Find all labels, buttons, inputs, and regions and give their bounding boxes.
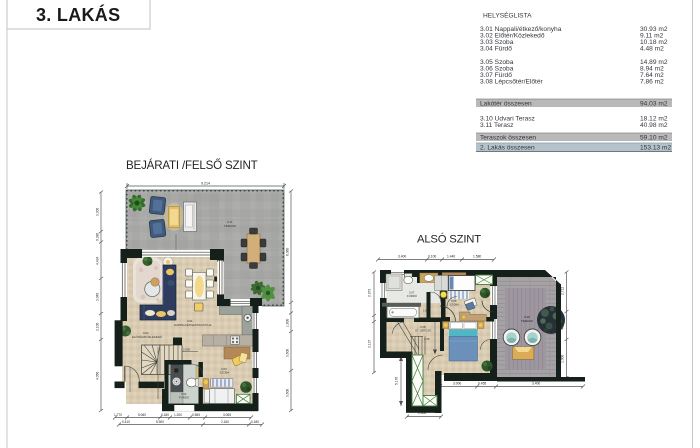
svg-text:3.04 Fürdő: 3.04 Fürdő bbox=[480, 46, 512, 53]
svg-text:3. LAKÁS: 3. LAKÁS bbox=[36, 4, 120, 25]
svg-text:SZOBA: SZOBA bbox=[220, 371, 230, 375]
svg-text:5.900: 5.900 bbox=[156, 420, 164, 424]
svg-text:4.48 m2: 4.48 m2 bbox=[640, 46, 664, 53]
svg-text:59.10 m2: 59.10 m2 bbox=[640, 135, 668, 142]
svg-text:0.180: 0.180 bbox=[161, 413, 169, 417]
svg-text:0.100: 0.100 bbox=[428, 255, 436, 259]
svg-text:2. Lakás összesen: 2. Lakás összesen bbox=[480, 145, 535, 152]
svg-text:TERASZ: TERASZ bbox=[224, 224, 236, 228]
svg-text:1.80: 1.80 bbox=[423, 309, 429, 313]
svg-text:2.712: 2.712 bbox=[561, 287, 565, 295]
svg-text:3.000: 3.000 bbox=[453, 382, 461, 386]
svg-text:HELYSÉGLISTA: HELYSÉGLISTA bbox=[483, 11, 532, 20]
svg-text:FÜRDŐ: FÜRDŐ bbox=[407, 293, 418, 298]
svg-text:6.060: 6.060 bbox=[286, 248, 290, 256]
svg-text:NAPPALI/ÉTKEZŐ/KONYHA: NAPPALI/ÉTKEZŐ/KONYHA bbox=[174, 322, 211, 327]
svg-text:3.600: 3.600 bbox=[286, 349, 290, 357]
svg-text:1.800: 1.800 bbox=[286, 319, 290, 327]
svg-text:FÜRDŐ: FÜRDŐ bbox=[179, 395, 190, 400]
svg-text:5.176: 5.176 bbox=[395, 377, 399, 385]
svg-text:Teraszok összesen: Teraszok összesen bbox=[480, 135, 536, 142]
svg-text:0.565: 0.565 bbox=[192, 413, 200, 417]
svg-text:ALSÓ SZINT: ALSÓ SZINT bbox=[417, 233, 481, 246]
svg-text:40.98 m2: 40.98 m2 bbox=[640, 122, 668, 129]
svg-text:0.380: 0.380 bbox=[96, 233, 100, 241]
svg-text:TERASZ: TERASZ bbox=[521, 319, 533, 323]
svg-text:SZOBA: SZOBA bbox=[450, 303, 460, 307]
svg-text:2.000: 2.000 bbox=[183, 348, 190, 352]
svg-text:3.137: 3.137 bbox=[368, 340, 372, 348]
svg-text:BEJÁRATI /FELSŐ SZINT: BEJÁRATI /FELSŐ SZINT bbox=[126, 158, 258, 172]
svg-text:2.160: 2.160 bbox=[221, 420, 229, 424]
svg-text:3.05: 3.05 bbox=[424, 337, 430, 341]
svg-text:3.400: 3.400 bbox=[532, 382, 540, 386]
svg-text:7.86 m2: 7.86 m2 bbox=[640, 79, 664, 86]
svg-text:153.13 m2: 153.13 m2 bbox=[640, 145, 671, 152]
svg-text:3.08 Lépcsőtér/Előtér: 3.08 Lépcsőtér/Előtér bbox=[480, 79, 543, 86]
svg-text:Lakótér összesen: Lakótér összesen bbox=[480, 101, 532, 108]
svg-text:3.300: 3.300 bbox=[96, 208, 100, 216]
svg-text:ELŐTÉR/KÖZLEKEDŐ: ELŐTÉR/KÖZLEKEDŐ bbox=[132, 334, 163, 339]
svg-text:9.214: 9.214 bbox=[201, 182, 210, 186]
svg-text:5.060: 5.060 bbox=[138, 413, 146, 417]
svg-text:1.200: 1.200 bbox=[174, 413, 182, 417]
svg-text:4.050: 4.050 bbox=[96, 372, 100, 380]
svg-text:2.100: 2.100 bbox=[96, 323, 100, 331]
svg-text:1.580: 1.580 bbox=[473, 255, 481, 259]
svg-text:0.180: 0.180 bbox=[251, 420, 259, 424]
svg-text:3.045: 3.045 bbox=[96, 293, 100, 301]
svg-text:0.455: 0.455 bbox=[478, 382, 486, 386]
svg-text:1.000: 1.000 bbox=[561, 355, 565, 363]
svg-text:ST. LÉPCSŐ: ST. LÉPCSŐ bbox=[415, 328, 432, 333]
svg-text:4.434: 4.434 bbox=[96, 257, 100, 265]
svg-text:0.410: 0.410 bbox=[122, 420, 130, 424]
svg-text:3.600: 3.600 bbox=[286, 389, 290, 397]
svg-text:2.973: 2.973 bbox=[368, 289, 372, 297]
svg-text:1.440: 1.440 bbox=[447, 255, 455, 259]
svg-text:1.770: 1.770 bbox=[114, 413, 122, 417]
svg-text:94.03 m2: 94.03 m2 bbox=[640, 101, 668, 108]
svg-text:3.065: 3.065 bbox=[223, 413, 231, 417]
svg-text:3.400: 3.400 bbox=[398, 255, 406, 259]
svg-text:3.11 Terasz: 3.11 Terasz bbox=[480, 122, 513, 129]
